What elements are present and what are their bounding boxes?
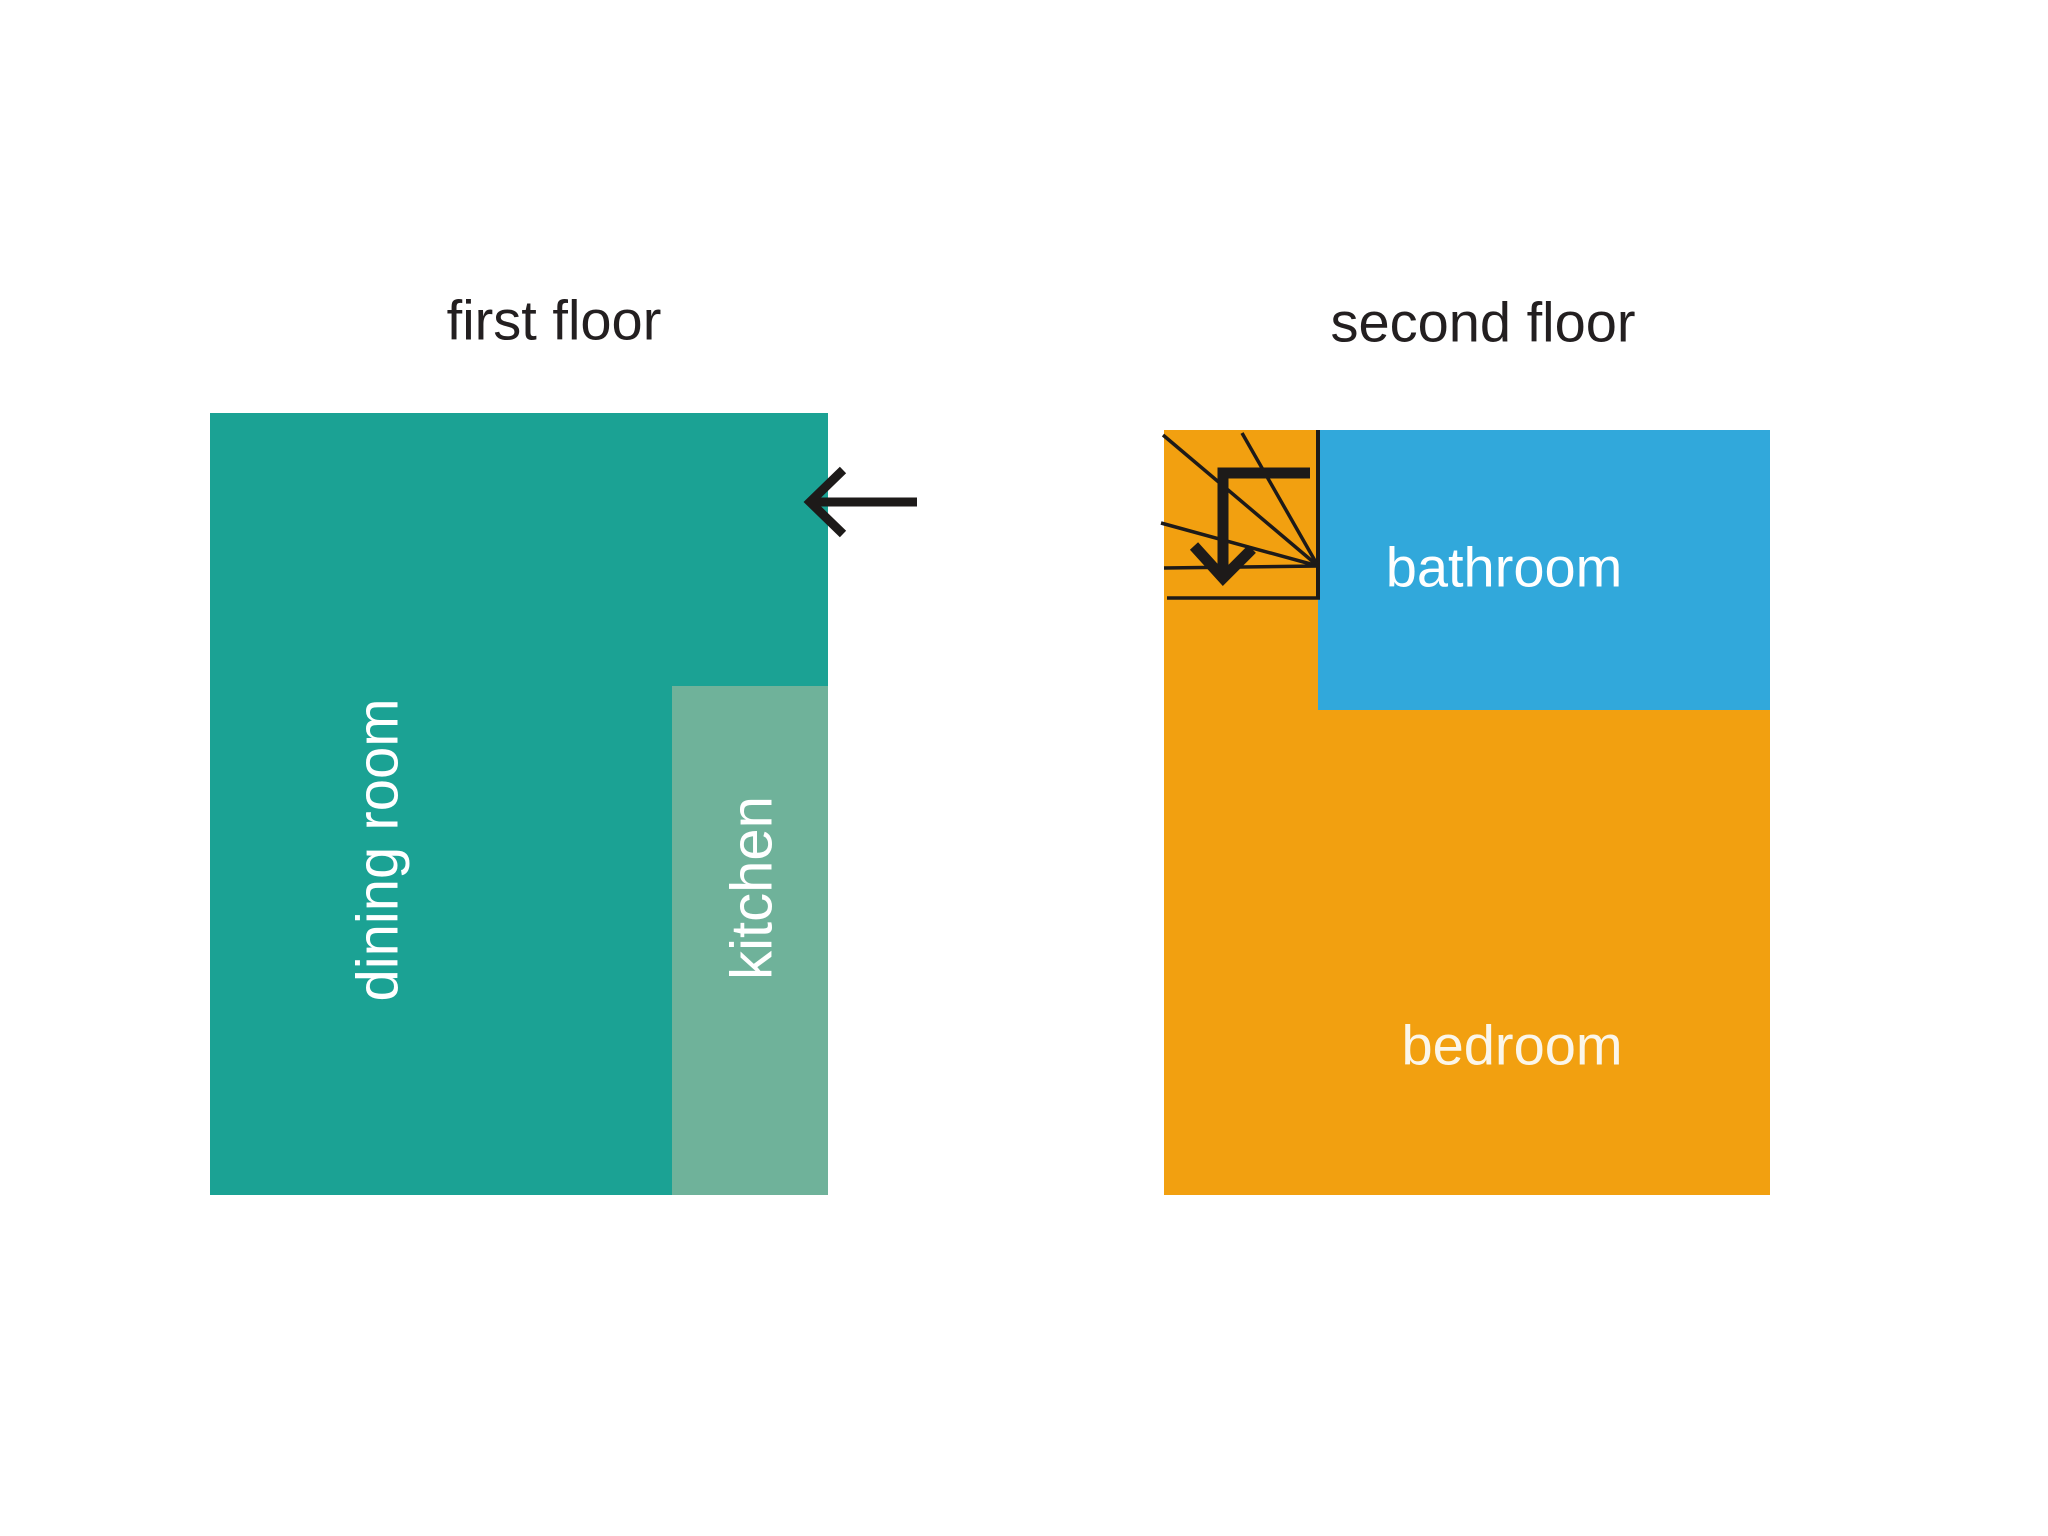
bathroom-label: bathroom — [1386, 535, 1623, 600]
stairs-down-icon — [1158, 428, 1322, 602]
dining-room-label: dining room — [345, 698, 412, 1001]
bedroom-label: bedroom — [1401, 1013, 1622, 1078]
kitchen-label: kitchen — [719, 796, 786, 980]
entry-left-arrow-icon — [795, 455, 930, 550]
first-floor-title: first floor — [447, 288, 662, 353]
second-floor-title: second floor — [1330, 290, 1635, 355]
floor-plan-diagram: first floor dining room kitchen second f… — [0, 0, 2048, 1536]
